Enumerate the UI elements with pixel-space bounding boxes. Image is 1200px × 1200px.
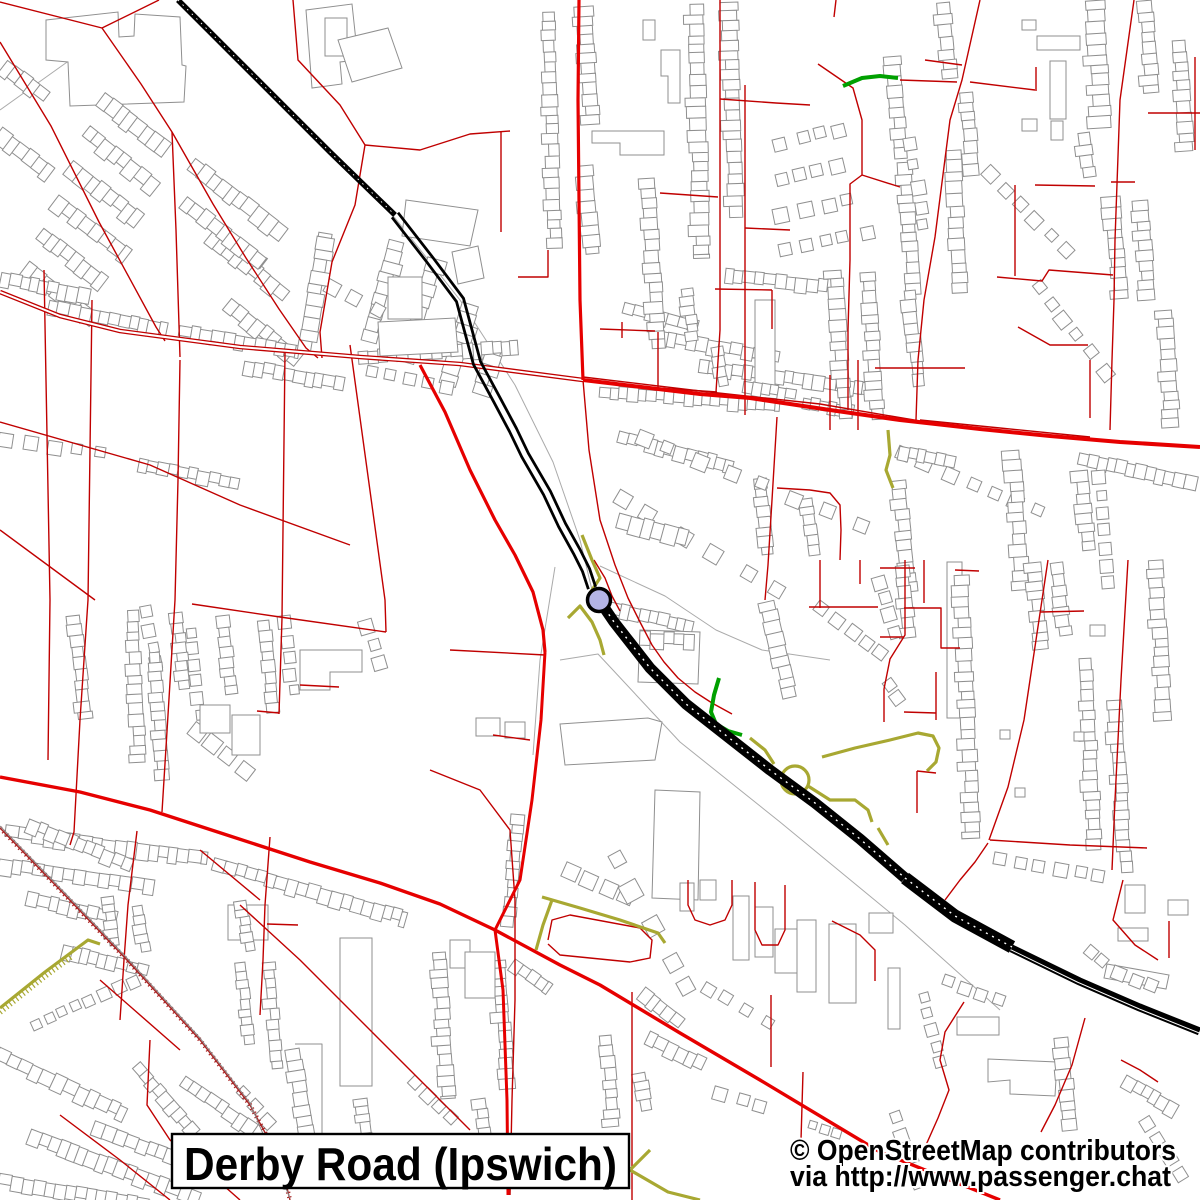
svg-text:Derby Road (Ipswich): Derby Road (Ipswich) [184,1138,617,1190]
svg-text:via http://www.passenger.chat: via http://www.passenger.chat [790,1161,1171,1193]
